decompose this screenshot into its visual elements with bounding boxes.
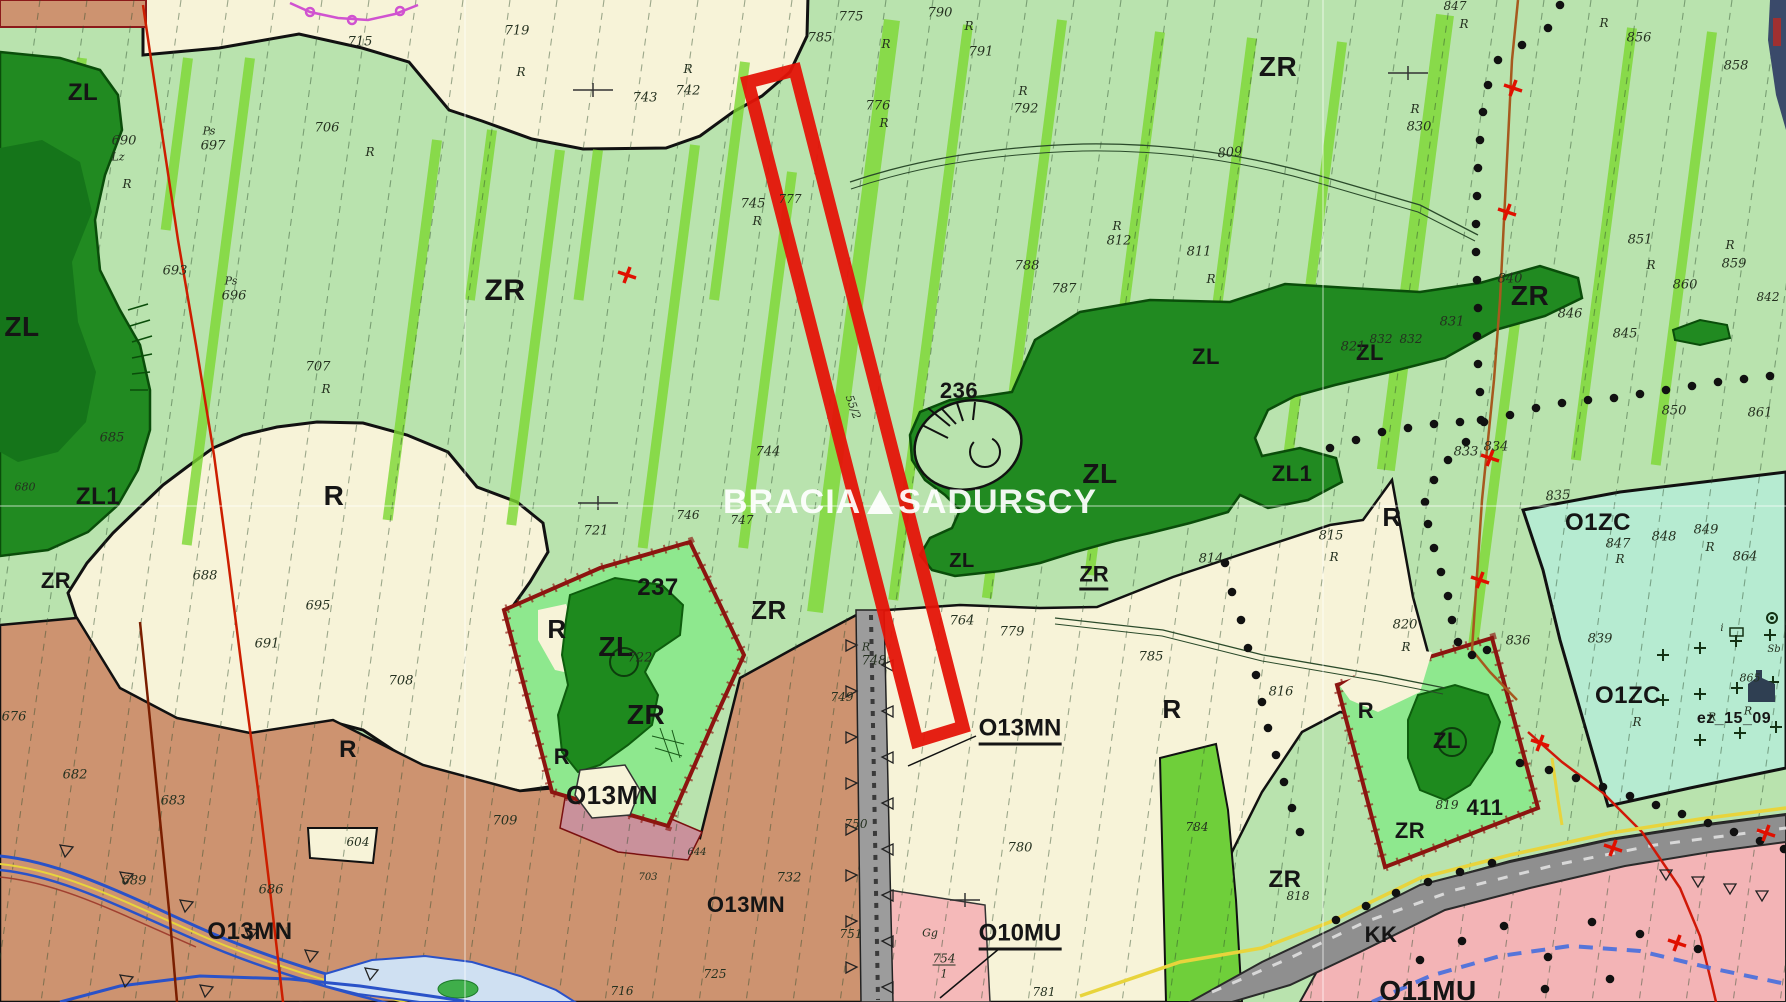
watermark-post: SADURSCY — [898, 483, 1097, 522]
zoning-map-canvas[interactable]: ZRZRZRZRZRZRZRZRZRZLZLZL1ZLZL1ZLZLZLZLZL… — [0, 0, 1786, 1002]
river-island — [438, 980, 478, 998]
watermark: BRACIA SADURSCY — [723, 483, 1083, 522]
watermark-logo-icon — [867, 490, 893, 514]
cream-island-604 — [308, 828, 377, 863]
zone-brown-topleft — [0, 0, 146, 27]
watermark-pre: BRACIA — [723, 483, 861, 522]
